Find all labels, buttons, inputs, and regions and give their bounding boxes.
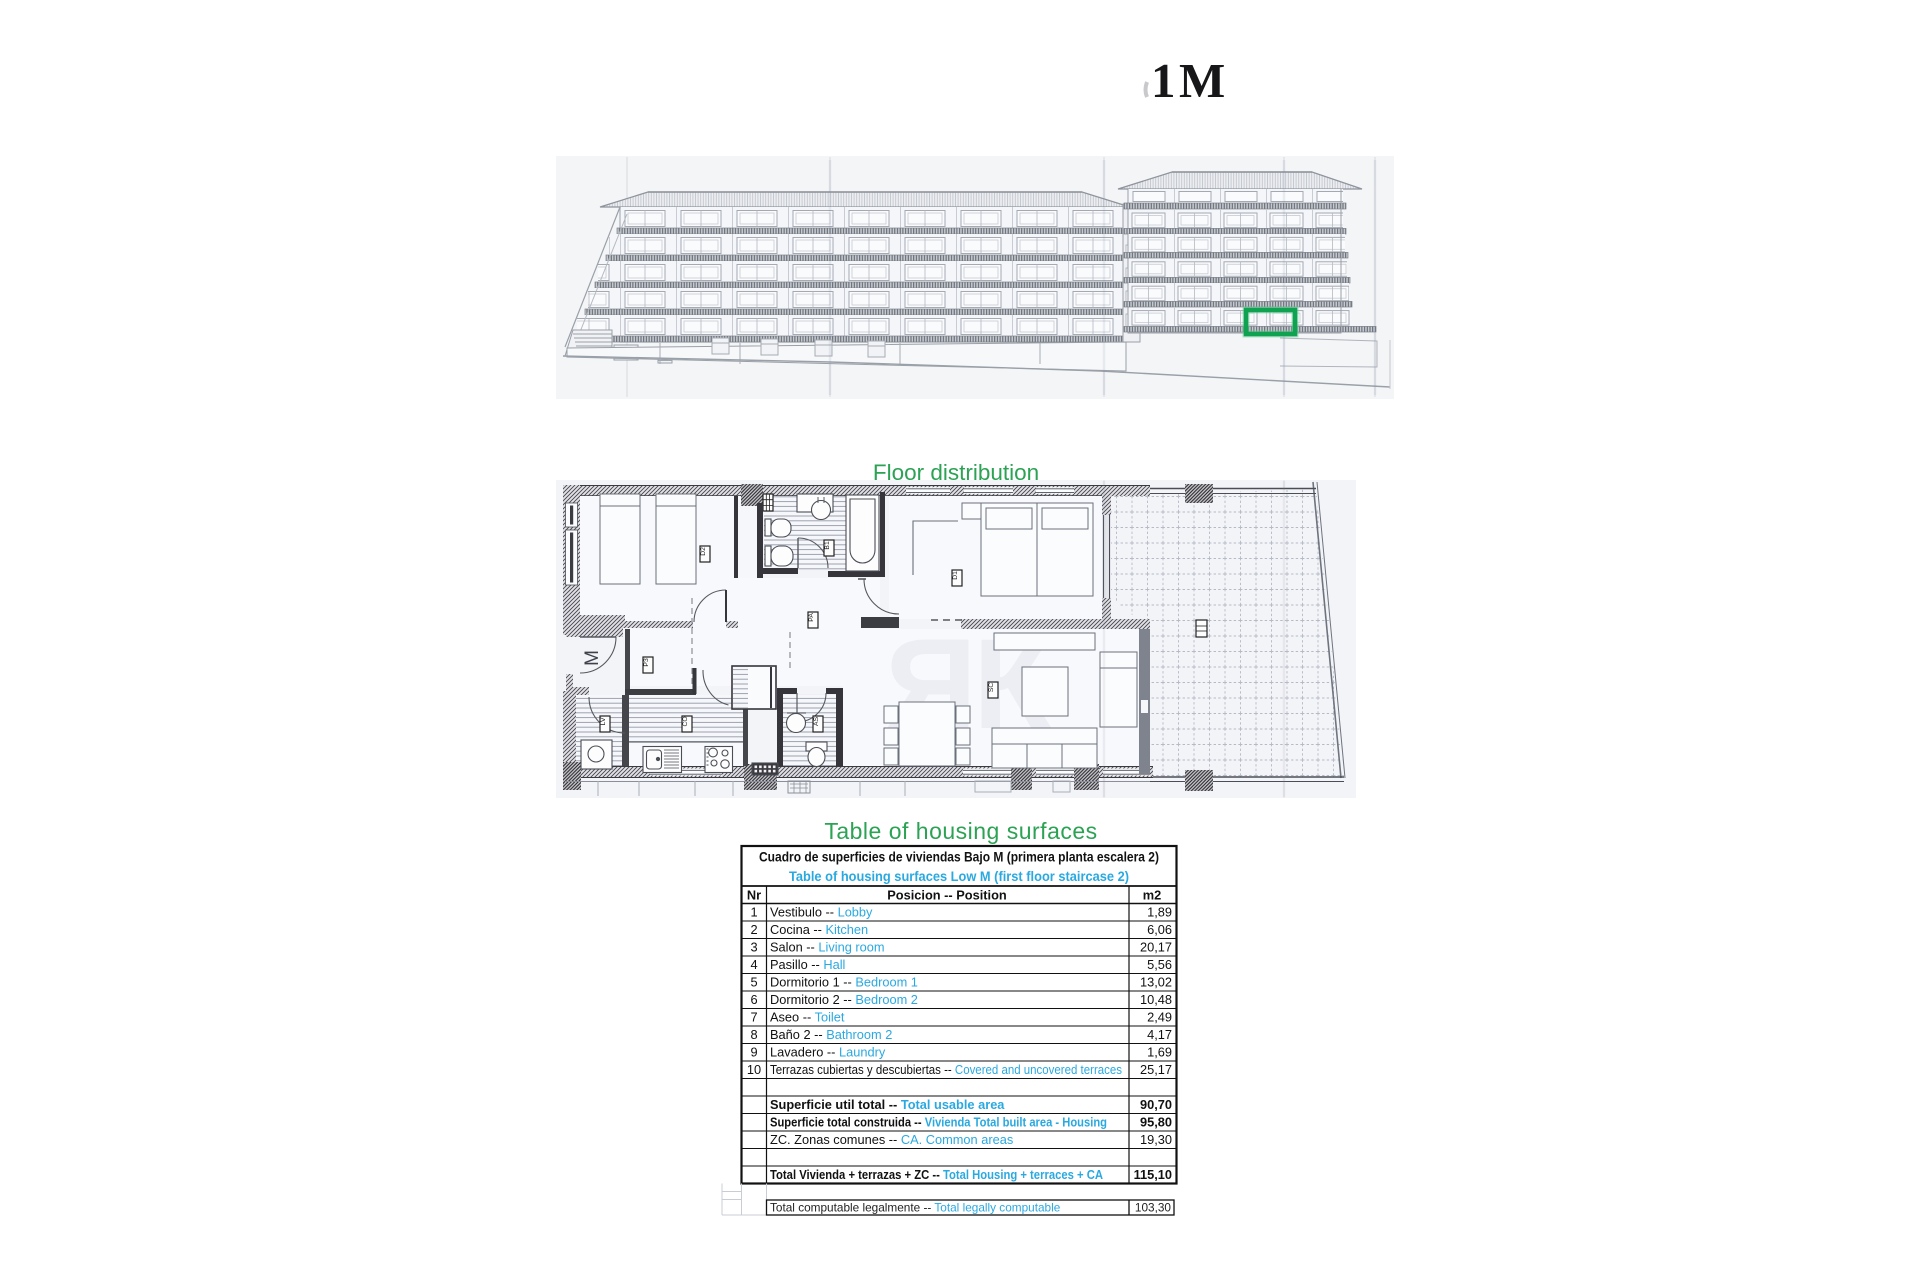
svg-text:90,70: 90,70 [1140,1097,1172,1112]
svg-text:Cocina -- Kitchen: Cocina -- Kitchen [770,922,868,937]
svg-text:Nr: Nr [747,888,761,903]
svg-text:CO: CO [682,716,689,726]
svg-text:Table of housing surfaces Low: Table of housing surfaces Low M (first f… [789,869,1129,884]
svg-text:5,56: 5,56 [1147,957,1172,972]
svg-text:7: 7 [750,1010,757,1025]
svg-text:4: 4 [750,957,757,972]
svg-text:Posicion -- Position: Posicion -- Position [887,888,1007,903]
svg-text:8: 8 [750,1027,757,1042]
svg-text:SC: SC [988,683,995,693]
svg-text:13,02: 13,02 [1140,975,1172,990]
svg-text:2,49: 2,49 [1147,1010,1172,1025]
svg-text:Aseo -- Toilet: Aseo -- Toilet [770,1010,845,1025]
svg-text:AS: AS [813,716,820,726]
svg-text:25,17: 25,17 [1140,1062,1172,1077]
svg-text:Superficie util total -- Total: Superficie util total -- Total usable ar… [770,1097,1005,1112]
svg-text:Dormitorio 2 -- Bedroom 2: Dormitorio 2 -- Bedroom 2 [770,992,918,1007]
svg-text:Salon -- Living room: Salon -- Living room [770,940,885,955]
svg-text:Vestibulo -- Lobby: Vestibulo -- Lobby [770,905,873,920]
svg-text:D1: D1 [952,571,959,580]
svg-text:95,80: 95,80 [1140,1115,1172,1130]
svg-text:B1: B1 [824,541,831,550]
svg-text:Superficie total construida --: Superficie total construida -- Vivienda … [770,1115,1107,1130]
svg-text:m2: m2 [1143,888,1162,903]
svg-text:Total computable legalmente --: Total computable legalmente -- Total leg… [770,1201,1061,1215]
svg-text:6,06: 6,06 [1147,922,1172,937]
svg-text:Pasillo -- Hall: Pasillo -- Hall [770,957,845,972]
svg-text:PA: PA [808,613,815,622]
svg-text:5: 5 [750,975,757,990]
svg-text:ZC. Zonas comunes -- CA. Comm: ZC. Zonas comunes -- CA. Common areas [770,1132,1013,1147]
svg-text:D2: D2 [700,547,707,556]
svg-text:P3: P3 [643,658,650,667]
svg-text:115,10: 115,10 [1134,1167,1172,1182]
svg-text:20,17: 20,17 [1140,940,1172,955]
svg-text:3: 3 [750,940,757,955]
svg-text:10: 10 [747,1062,761,1077]
svg-text:Table of housing surfaces: Table of housing surfaces [824,818,1097,844]
svg-text:4,17: 4,17 [1147,1027,1172,1042]
svg-text:M: M [582,650,603,666]
svg-text:Total Vivienda + terrazas + ZC: Total Vivienda + terrazas + ZC -- Total … [770,1167,1103,1182]
svg-text:Cuadro de superficies de vivie: Cuadro de superficies de viviendas Bajo … [759,850,1159,865]
svg-text:LV: LV [600,717,607,725]
svg-text:Baño 2 -- Bathroom 2: Baño 2 -- Bathroom 2 [770,1027,892,1042]
svg-text:9: 9 [750,1045,757,1060]
svg-text:1: 1 [750,905,757,920]
svg-text:1,69: 1,69 [1147,1045,1172,1060]
svg-text:2: 2 [750,922,757,937]
svg-text:Lavadero -- Laundry: Lavadero -- Laundry [770,1045,886,1060]
svg-text:Dormitorio 1 -- Bedroom 1: Dormitorio 1 -- Bedroom 1 [770,975,918,990]
svg-text:6: 6 [750,992,757,1007]
svg-text:10,48: 10,48 [1140,992,1172,1007]
svg-text:Floor distribution: Floor distribution [873,460,1039,485]
svg-text:Terrazas cubiertas y descubier: Terrazas cubiertas y descubiertas -- Cov… [770,1062,1122,1077]
svg-text:1,89: 1,89 [1147,905,1172,920]
svg-text:19,30: 19,30 [1140,1132,1172,1147]
svg-text:103,30: 103,30 [1135,1201,1172,1215]
svg-text:1M: 1M [1151,53,1229,108]
